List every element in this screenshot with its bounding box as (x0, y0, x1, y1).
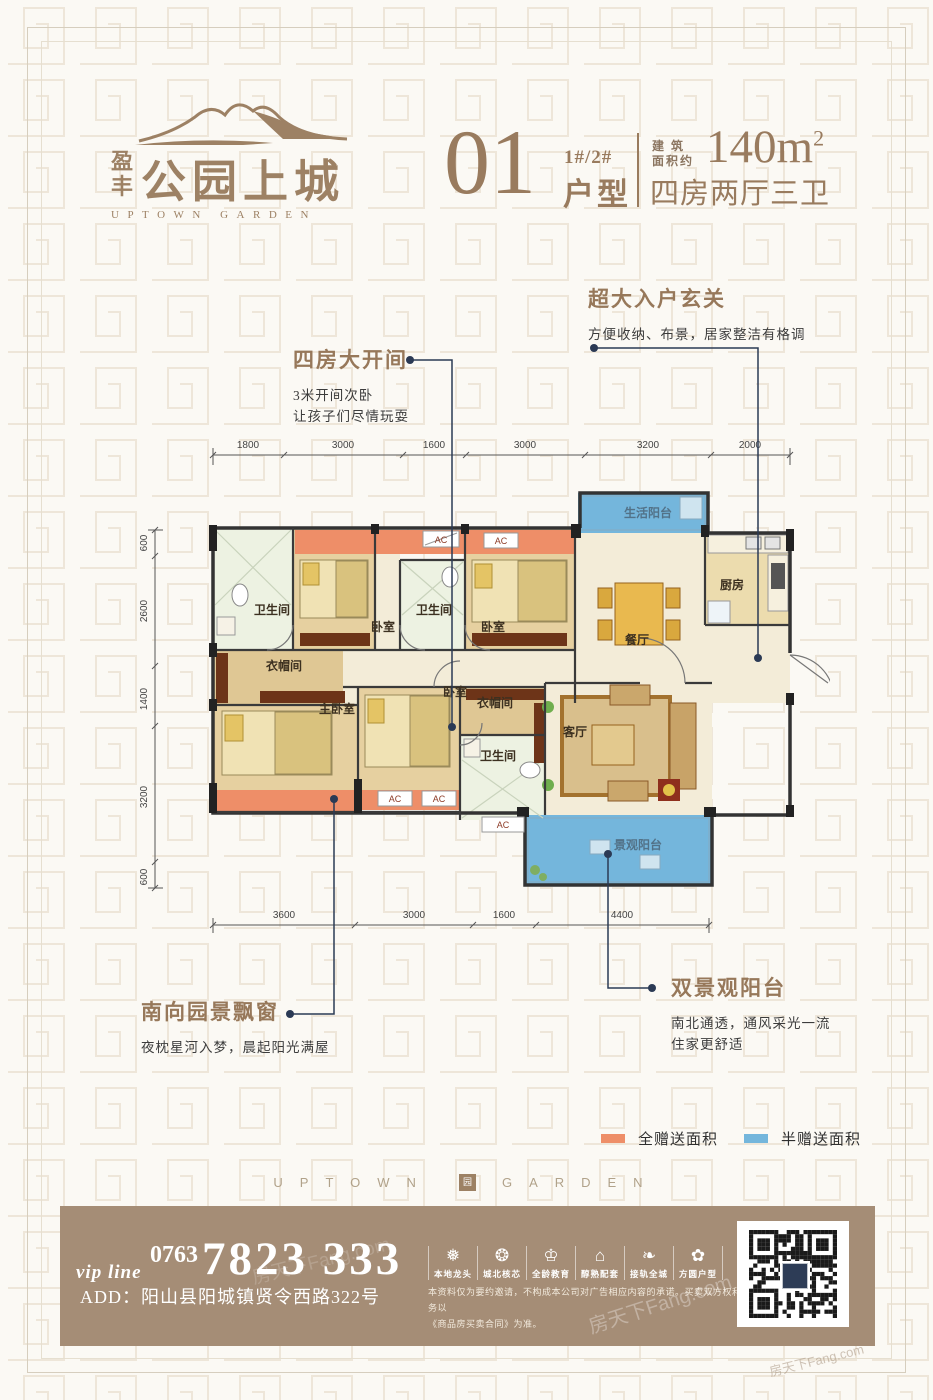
feature-list: ❅ 本地龙头 ❂ 城北核芯 ♔ 全龄教育 ⌂ 醇熟配套 ❧ 接轨全城 ✿ 方圆户… (428, 1246, 723, 1280)
house-icon: ⌂ (576, 1246, 624, 1265)
legend-item-full-gift: 全赠送面积 (601, 1128, 718, 1149)
annotation-bay-window: 南向园景飘窗 夜枕星河入梦，晨起阳光满屋 (141, 996, 330, 1058)
feature-item: ⌂ 醇熟配套 (575, 1246, 624, 1280)
disclaimer: 本资料仅为要约邀请，不构成本公司对广告相应内容的承诺。买卖双方权利义务以 《商品… (428, 1284, 758, 1332)
svg-text:AC: AC (435, 535, 448, 545)
legend-label: 半赠送面积 (781, 1128, 861, 1149)
label-living: 客厅 (562, 724, 587, 739)
annotation-text: 3米开间次卧 让孩子们尽情玩耍 (293, 385, 409, 427)
label-dining: 餐厅 (625, 632, 649, 647)
phone-number: 7823 333 (202, 1232, 402, 1286)
annotation-entry-hall: 超大入户玄关 方便收纳、布景，居家整洁有格调 (588, 283, 806, 345)
svg-text:AC: AC (389, 794, 402, 804)
brand-cn-1: 盈 (108, 149, 136, 174)
brand-name-vertical: 盈 丰 (108, 149, 136, 199)
area-prefix-line2: 面积约 (652, 154, 694, 169)
svg-text:AC: AC (497, 820, 510, 830)
label-bedroom-1: 卧室 (371, 619, 395, 634)
header-divider (637, 133, 639, 207)
qr-code (737, 1221, 849, 1327)
area-value-sup: 2 (813, 125, 824, 150)
svg-text:1600: 1600 (423, 440, 446, 451)
annotation-text: 夜枕星河入梦，晨起阳光满屋 (141, 1037, 330, 1058)
legend-swatch-blue (744, 1134, 768, 1143)
unit-rooms: 四房两厅三卫 (650, 170, 830, 212)
feature-label: 接轨全城 (625, 1268, 673, 1280)
svg-text:AC: AC (433, 794, 446, 804)
area-prefix-line1: 建 筑 (652, 139, 694, 154)
label-view-balcony: 景观阳台 (614, 837, 662, 852)
vip-line-label: vip line (76, 1262, 142, 1284)
phone-area-code: 0763 (150, 1242, 198, 1269)
unit-buildings: 1#/2# (564, 147, 612, 169)
feature-label: 醇熟配套 (576, 1268, 624, 1280)
svg-text:1600: 1600 (493, 910, 516, 921)
annotation-title: 超大入户玄关 (588, 283, 806, 313)
wheel-icon: ❂ (478, 1246, 526, 1265)
feature-label: 全龄教育 (527, 1268, 575, 1280)
annotation-text: 方便收纳、布景，居家整洁有格调 (588, 324, 806, 345)
unit-type-label: 户型 (563, 169, 631, 214)
label-bathroom-1: 卫生间 (254, 602, 290, 617)
svg-text:3000: 3000 (332, 440, 355, 451)
svg-text:3000: 3000 (514, 440, 537, 451)
area-value-number: 140m (706, 121, 813, 173)
legend-swatch-orange (601, 1134, 625, 1143)
legend: 全赠送面积 半赠送面积 (601, 1128, 861, 1149)
wings-icon: ❧ (625, 1246, 673, 1265)
label-life-balcony: 生活阳台 (624, 505, 672, 520)
svg-text:1800: 1800 (237, 440, 260, 451)
address: ADD：阳山县阳城镇贤令西路322号 (80, 1283, 380, 1309)
feature-item: ✿ 方圆户型 (673, 1246, 723, 1280)
feature-item: ♔ 全龄教育 (526, 1246, 575, 1280)
annotation-four-bedrooms: 四房大开间 3米开间次卧 让孩子们尽情玩耍 (293, 344, 409, 427)
legend-item-half-gift: 半赠送面积 (744, 1128, 861, 1149)
annotation-double-balcony: 双景观阳台 南北通透，通风采光一流 住家更舒适 (671, 972, 831, 1055)
annotation-title: 四房大开间 (293, 344, 409, 374)
feature-label: 本地龙头 (429, 1268, 477, 1280)
svg-text:4400: 4400 (611, 910, 634, 921)
svg-text:AC: AC (495, 536, 508, 546)
annotation-title: 双景观阳台 (671, 972, 831, 1002)
mountain-logo-icon (133, 93, 353, 147)
brand-letter-band: UPTOWN 园 GARDEN (0, 1174, 933, 1191)
feature-label: 方圆户型 (674, 1268, 722, 1280)
disclaimer-line2: 《商品房买卖合同》为准。 (428, 1316, 758, 1332)
brand-name: 公园上城 (141, 145, 345, 210)
svg-text:600: 600 (139, 868, 150, 885)
svg-text:3000: 3000 (403, 910, 426, 921)
svg-text:3200: 3200 (139, 785, 150, 808)
label-closet-1: 衣帽间 (266, 658, 302, 673)
label-bathroom-3: 卫生间 (480, 748, 516, 763)
poster-page: 盈 丰 公园上城 UPTOWN GARDEN 01 1#/2# 户型 建 筑 面… (0, 0, 933, 1400)
brand-logo: 盈 丰 公园上城 UPTOWN GARDEN (105, 93, 375, 233)
feature-label: 城北核芯 (478, 1268, 526, 1280)
svg-text:3200: 3200 (637, 440, 660, 451)
svg-text:1400: 1400 (139, 687, 150, 710)
area-prefix: 建 筑 面积约 (652, 139, 694, 169)
label-bedroom-3: 卧室 (443, 684, 467, 699)
footer-bar: vip line 0763 7823 333 ADD：阳山县阳城镇贤令西路322… (60, 1206, 875, 1346)
feature-item: ❅ 本地龙头 (428, 1246, 477, 1280)
svg-text:2000: 2000 (739, 440, 762, 451)
band-right: GARDEN (502, 1175, 660, 1190)
flower-icon: ✿ (674, 1246, 722, 1265)
svg-text:2600: 2600 (139, 599, 150, 622)
feature-item: ❧ 接轨全城 (624, 1246, 673, 1280)
label-master-bedroom: 主卧室 (319, 701, 355, 716)
unit-number: 01 (444, 118, 536, 206)
brand-cn-2: 丰 (108, 174, 136, 199)
floor-plan: AC AC AC AC AC 卫生间 卫生间 卧室 卧室 生活阳台 厨房 餐厅 … (110, 415, 830, 975)
area-value: 140m2 (706, 120, 824, 174)
svg-text:3600: 3600 (273, 910, 296, 921)
disclaimer-line1: 本资料仅为要约邀请，不构成本公司对广告相应内容的承诺。买卖双方权利义务以 (428, 1284, 758, 1316)
label-bedroom-2: 卧室 (481, 619, 505, 634)
band-left: UPTOWN (273, 1175, 433, 1190)
feature-item: ❂ 城北核芯 (477, 1246, 526, 1280)
annotation-title: 南向园景飘窗 (141, 996, 330, 1026)
brand-seal-icon: 园 (459, 1174, 476, 1191)
legend-label: 全赠送面积 (638, 1128, 718, 1149)
label-bathroom-2: 卫生间 (416, 602, 452, 617)
qr-center-logo (780, 1261, 810, 1291)
crown-icon: ♔ (527, 1246, 575, 1265)
brand-name-en: UPTOWN GARDEN (111, 209, 317, 221)
svg-text:600: 600 (139, 534, 150, 551)
annotation-text: 南北通透，通风采光一流 住家更舒适 (671, 1013, 831, 1055)
label-closet-2: 衣帽间 (477, 695, 513, 710)
snowflake-icon: ❅ (429, 1246, 477, 1265)
label-kitchen: 厨房 (720, 577, 744, 592)
